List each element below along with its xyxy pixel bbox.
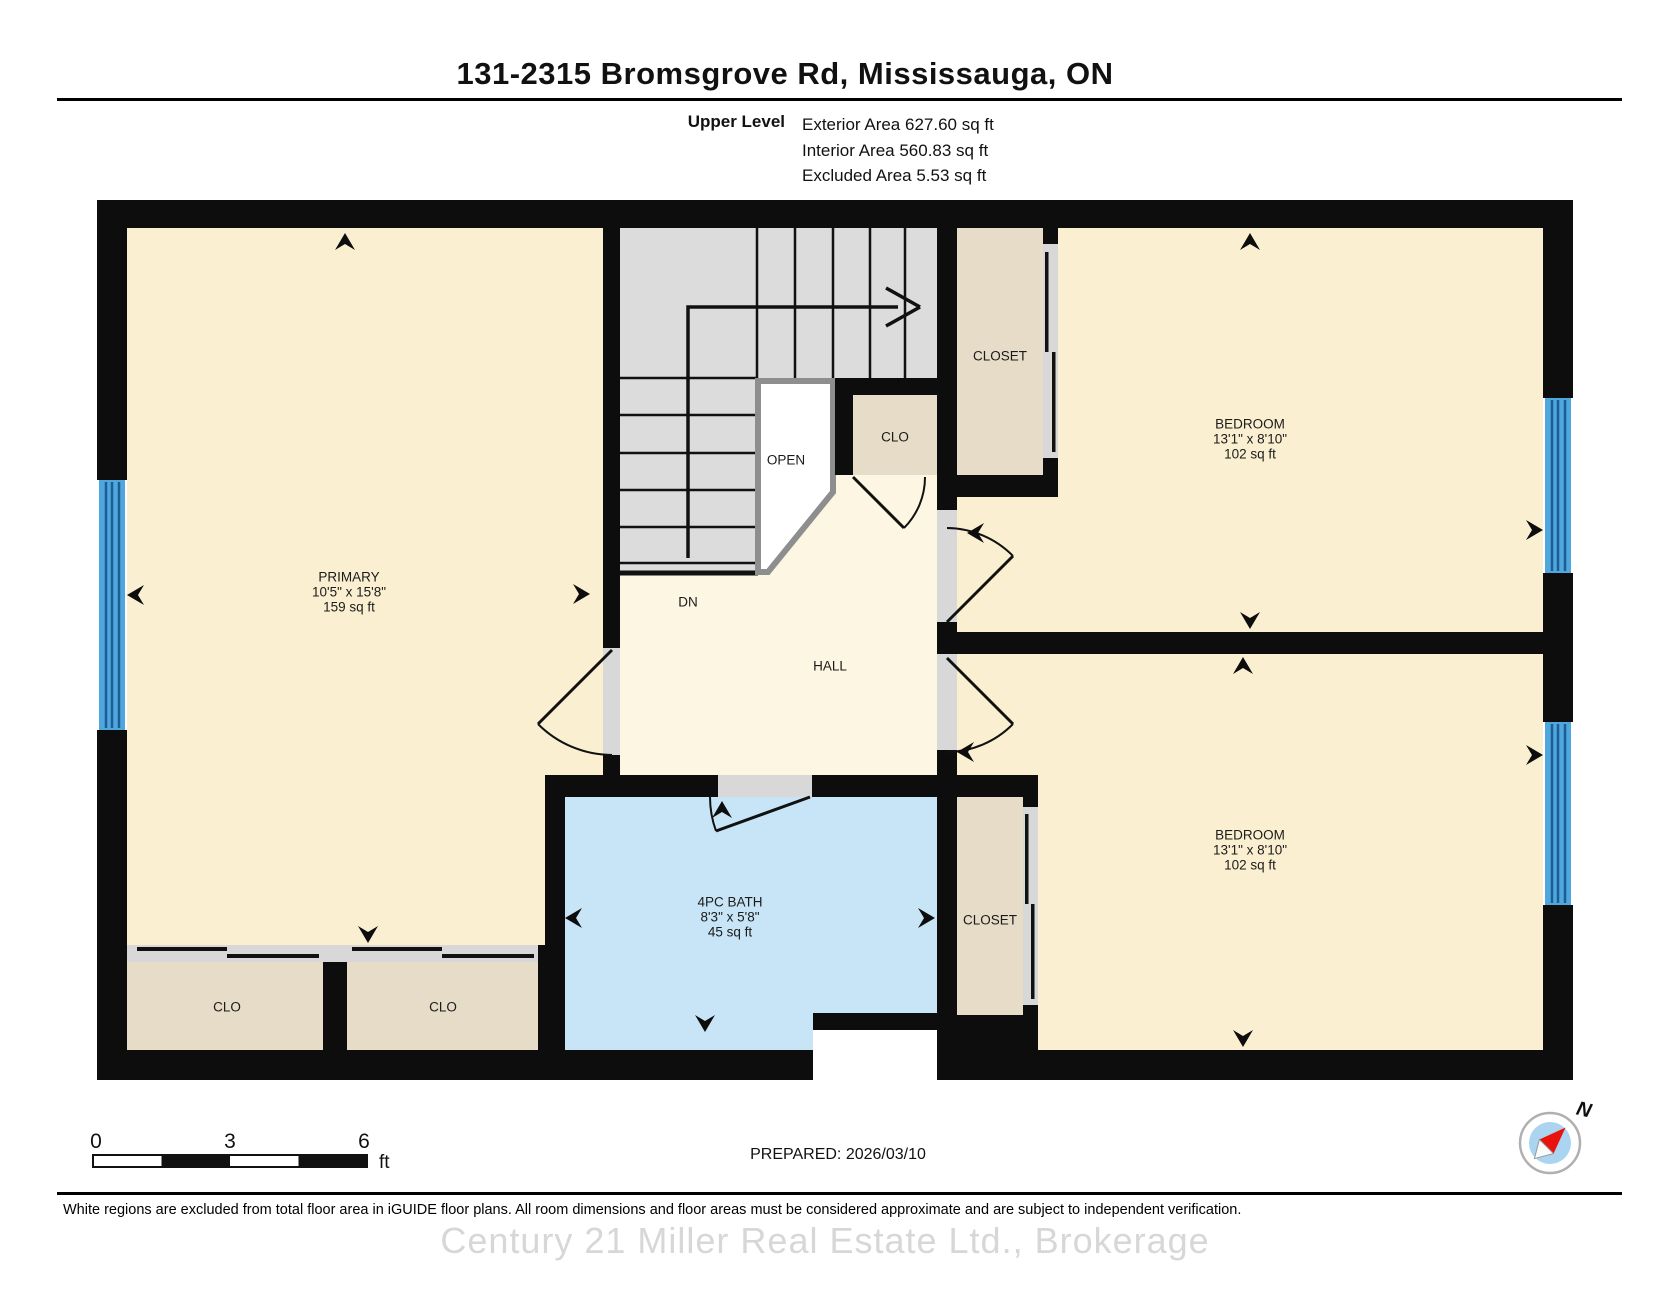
- open-label: OPEN: [767, 453, 805, 468]
- compass-north-label: N: [1574, 1098, 1594, 1123]
- prepared-date: PREPARED: 2026/03/10: [750, 1146, 926, 1164]
- room-label-bedroom2: BEDROOM13'1" x 8'10"102 sq ft: [1213, 828, 1287, 873]
- stairs-down-label: DN: [678, 595, 698, 610]
- room-label-hall: HALL: [813, 659, 847, 674]
- room-label-closet-top: CLOSET: [973, 349, 1027, 364]
- floorplan-drawing: 0 3 6 ft N: [0, 0, 1680, 1299]
- room-label-clo-hall: CLO: [881, 430, 909, 445]
- brokerage-watermark: Century 21 Miller Real Estate Ltd., Brok…: [440, 1220, 1209, 1262]
- room-label-clo-right: CLO: [429, 1000, 457, 1015]
- scale-bar: 0 3 6 ft: [90, 1130, 390, 1173]
- stair-upper-floor: [620, 228, 937, 378]
- scale-unit: ft: [379, 1152, 390, 1173]
- room-label-primary: PRIMARY10'5" x 15'8"159 sq ft: [312, 570, 386, 615]
- scale-tick-3: 3: [224, 1130, 236, 1153]
- scale-tick-6: 6: [358, 1130, 370, 1153]
- room-label-closet-bottom: CLOSET: [963, 913, 1017, 928]
- room-label-bedroom1: BEDROOM13'1" x 8'10"102 sq ft: [1213, 417, 1287, 462]
- compass: N: [1520, 1098, 1594, 1173]
- disclaimer-text: White regions are excluded from total fl…: [63, 1202, 1241, 1218]
- room-label-clo-left: CLO: [213, 1000, 241, 1015]
- floorplan-page: 131-2315 Bromsgrove Rd, Mississauga, ON …: [0, 0, 1680, 1299]
- scale-tick-0: 0: [90, 1130, 102, 1153]
- closet-bottom-floor: [957, 797, 1023, 1015]
- footer-divider: [57, 1192, 1622, 1195]
- room-label-bath: 4PC BATH8'3" x 5'8"45 sq ft: [697, 895, 762, 940]
- hall-floor: [620, 572, 937, 775]
